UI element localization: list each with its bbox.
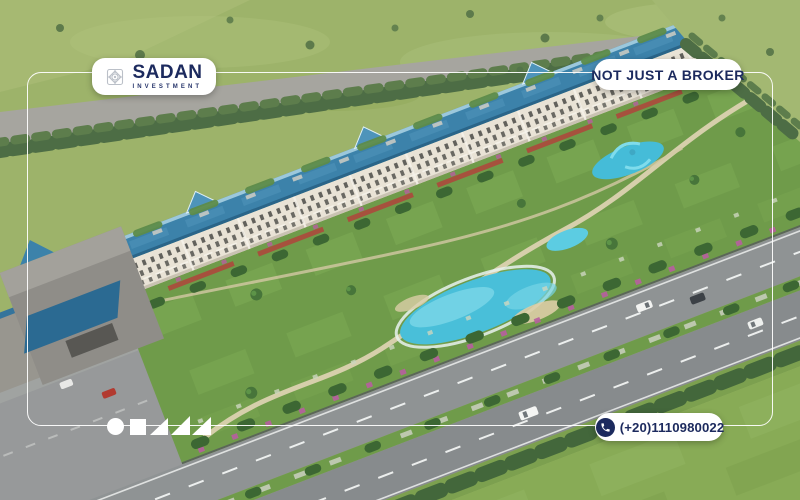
tagline-badge: NOT JUST A BROKER xyxy=(594,59,742,90)
circle-shape xyxy=(107,418,124,435)
tagline-text: NOT JUST A BROKER xyxy=(591,67,745,83)
phone-number: (+20)1110980022 xyxy=(620,420,725,435)
brand-logo-badge: SADAN INVESTMENT xyxy=(92,58,216,95)
phone-icon xyxy=(596,418,615,437)
marketing-visual: SADAN INVESTMENT NOT JUST A BROKER (+20)… xyxy=(0,0,800,500)
rosette-icon xyxy=(105,67,125,87)
triangle-shape xyxy=(150,418,168,435)
brand-name: SADAN xyxy=(132,63,202,82)
brand-division: INVESTMENT xyxy=(132,84,202,90)
brand-logo-text: SADAN INVESTMENT xyxy=(132,63,202,90)
phone-badge[interactable]: (+20)1110980022 xyxy=(595,413,723,441)
square-shape xyxy=(130,419,146,435)
triangle-shape xyxy=(192,417,211,435)
triangle-shape xyxy=(171,416,190,435)
